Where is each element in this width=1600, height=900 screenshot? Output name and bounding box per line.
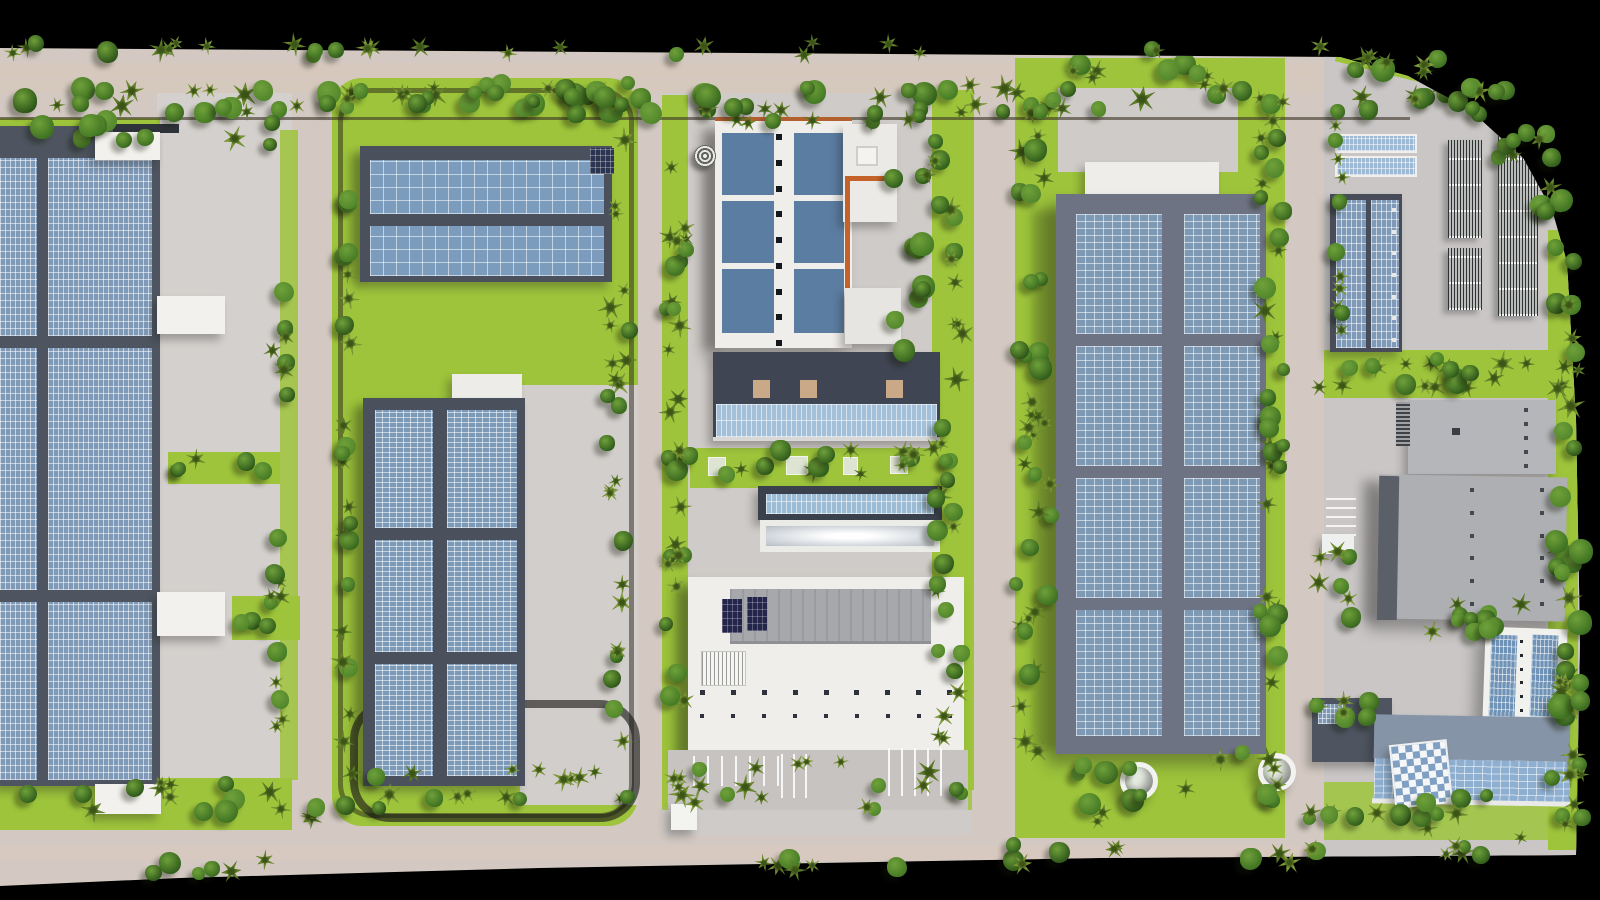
tree-icon: [1429, 50, 1447, 68]
tree-icon: [1268, 129, 1286, 147]
building-e2-vent-column-0: [1524, 408, 1528, 412]
palm-tree-icon: [1412, 53, 1436, 77]
tree-icon: [194, 102, 215, 123]
tree-icon: [1416, 793, 1435, 812]
tree-icon: [720, 787, 735, 802]
building-d-panel-8: [1184, 610, 1260, 736]
building-c4-vent-row-1-6: [885, 690, 890, 695]
tree-icon: [614, 97, 629, 112]
water-tank-small: [694, 145, 716, 167]
tree-icon: [817, 446, 835, 464]
building-c4-vent-row-2-2: [762, 714, 766, 718]
tree-icon: [513, 792, 527, 806]
building-e1-roof-dots-3: [1392, 273, 1396, 277]
building-c1-panel-1: [722, 133, 774, 195]
tree-icon: [307, 798, 325, 816]
building-c4-vent-row-1-4: [824, 690, 829, 695]
v1-road-planter: [280, 130, 298, 780]
site-ground: [0, 0, 1600, 900]
building-e4-solar-2: [1530, 635, 1559, 718]
tree-icon: [1451, 789, 1471, 809]
building-a-panel-3: [0, 602, 37, 780]
tree-icon: [893, 339, 915, 361]
tree-icon: [1442, 361, 1459, 378]
tree-icon: [871, 778, 886, 793]
tree-icon: [620, 790, 634, 804]
tree-icon: [605, 700, 622, 717]
tree-icon: [946, 663, 963, 680]
tree-icon: [269, 529, 287, 547]
aerial-site-render: [0, 0, 1600, 900]
tree-icon: [901, 83, 916, 98]
building-e3-vent-column-2-3: [1540, 556, 1544, 560]
tree-icon: [1235, 745, 1250, 760]
building-e4-center-dots-1: [1520, 654, 1523, 657]
tree-icon: [944, 503, 963, 522]
bike-parking-row-2: [1448, 248, 1482, 310]
palm-tree-icon: [1363, 47, 1379, 63]
tree-icon: [95, 82, 113, 100]
building-a-panel-1: [0, 158, 37, 336]
tree-icon: [1021, 539, 1039, 557]
building-c4-vent-row-2-7: [917, 714, 921, 718]
tree-icon: [1122, 761, 1137, 776]
building-c4-vent-row-1-0: [700, 690, 705, 695]
tree-icon: [1144, 41, 1160, 57]
building-c4-vent-row-2-1: [731, 714, 735, 718]
tree-icon: [215, 99, 232, 116]
building-d-panel-2: [1076, 346, 1162, 466]
building-e3-vent-column-1-1: [1470, 511, 1474, 515]
tree-icon: [603, 670, 621, 688]
palm-tree-icon: [1464, 77, 1494, 107]
building-c1-panel-3: [722, 269, 774, 333]
building-e2-vent-column-3: [1524, 450, 1528, 454]
tree-icon: [267, 642, 287, 662]
tree-icon: [1009, 577, 1023, 591]
tree-icon: [1462, 78, 1482, 98]
tree-icon: [30, 115, 54, 139]
tree-icon: [1488, 84, 1505, 101]
tree-icon: [408, 94, 427, 113]
tree-icon: [1320, 806, 1338, 824]
tree-icon: [1044, 508, 1059, 523]
building-d-panel-6: [1184, 346, 1260, 466]
palm-tree-icon: [1413, 61, 1435, 83]
building-e2-roof: [1408, 400, 1556, 474]
tree-icon: [621, 322, 638, 339]
tree-icon: [1346, 807, 1365, 826]
building-d-top-annex: [1085, 162, 1219, 198]
tree-icon: [233, 614, 249, 630]
carport-canopy-1: [1335, 134, 1417, 153]
tree-icon: [718, 466, 735, 483]
building-c1-roof-vents-1: [776, 160, 782, 166]
tree-icon: [929, 576, 946, 593]
tree-icon: [594, 86, 616, 108]
tree-icon: [336, 796, 354, 814]
tree-icon: [1341, 607, 1361, 627]
tree-icon: [274, 282, 294, 302]
tree-icon: [1437, 85, 1454, 102]
tree-icon: [116, 132, 132, 148]
tree-icon: [867, 105, 883, 121]
tree-icon: [567, 105, 586, 124]
building-c1-panel-4: [794, 133, 844, 195]
building-c4-pv-patch-1: [722, 599, 742, 633]
palm-tree-icon: [1307, 34, 1332, 59]
building-d-panel-5: [1184, 214, 1260, 334]
tree-icon: [910, 232, 934, 256]
tree-icon: [1023, 274, 1039, 290]
tree-icon: [468, 86, 482, 100]
building-b2-panel-4: [447, 410, 517, 528]
tree-icon: [1019, 664, 1040, 685]
tree-icon: [668, 664, 687, 683]
tree-icon: [1479, 620, 1498, 639]
tree-icon: [259, 618, 275, 634]
building-c4-vent-row-1-1: [731, 690, 736, 695]
tree-icon: [1257, 784, 1277, 804]
tree-icon: [1060, 81, 1076, 97]
tree-icon: [1028, 467, 1043, 482]
tree-icon: [1268, 646, 1288, 666]
tree-icon: [1550, 189, 1574, 213]
building-e2-vent-column-1: [1524, 422, 1528, 426]
building-c1-roof-vents-5: [776, 263, 782, 269]
tree-icon: [934, 419, 951, 436]
tree-icon: [1273, 202, 1291, 220]
tree-icon: [938, 80, 959, 101]
building-c2-vent-1: [753, 380, 770, 398]
building-c4-vent-row-2-5: [855, 714, 859, 718]
building-d-panel-7: [1184, 478, 1260, 598]
building-d-panel-3: [1076, 478, 1162, 598]
building-c1-roof-vents-7: [776, 314, 782, 320]
building-c3-solar-strip: [766, 494, 934, 514]
bike-parking-row-1: [1448, 140, 1482, 238]
palm-tree-icon: [876, 32, 901, 57]
building-d-panel-4: [1076, 610, 1162, 736]
building-e1-roof-dots-4: [1392, 295, 1396, 299]
tree-icon: [1495, 81, 1514, 100]
building-e3-vent-column-2-2: [1540, 534, 1544, 538]
building-e4-center-dots-3: [1520, 681, 1523, 684]
tree-icon: [599, 435, 615, 451]
building-e3-vent-column-2-5: [1540, 602, 1544, 606]
building-c4-vent-row-1-5: [854, 690, 859, 695]
building-a-panel-6: [48, 602, 152, 780]
building-c1-roof-vents-3: [776, 211, 782, 217]
building-c4-pv-patch-2: [747, 597, 767, 631]
tree-icon: [765, 113, 781, 129]
tree-icon: [72, 95, 89, 112]
tree-icon: [265, 564, 285, 584]
building-e3-vent-column-1-0: [1470, 488, 1474, 492]
building-b2-panel-1: [375, 410, 433, 528]
building-e3-left-strip: [1377, 476, 1400, 620]
building-c1-annex-skylight: [856, 146, 878, 166]
tree-icon: [343, 516, 358, 531]
tree-icon: [1390, 804, 1412, 826]
tree-icon: [487, 85, 503, 101]
building-c1-orange-trim-h: [845, 176, 889, 181]
building-e4-center-dots-2: [1520, 668, 1523, 671]
building-e3-vent-column-1-5: [1470, 602, 1474, 606]
tree-icon: [770, 440, 791, 461]
building-c1-panel-5: [794, 201, 844, 263]
tree-icon: [1461, 79, 1478, 96]
tree-icon: [667, 302, 681, 316]
building-c4-vent-row-2-4: [824, 714, 828, 718]
tree-icon: [1330, 104, 1345, 119]
building-b1-band-2: [370, 226, 604, 276]
tree-icon: [1277, 439, 1290, 452]
tree-icon: [724, 98, 743, 117]
building-e2-vent-column-4: [1524, 464, 1528, 468]
tree-icon: [934, 554, 953, 573]
tree-icon: [254, 462, 272, 480]
building-b2-panel-5: [447, 540, 517, 652]
building-e4-center-dots-5: [1520, 709, 1523, 712]
tree-icon: [1552, 198, 1566, 212]
building-c1-panel-2: [722, 201, 774, 263]
tree-icon: [938, 602, 953, 617]
tree-icon: [1261, 335, 1279, 353]
tree-icon: [1359, 100, 1378, 119]
tree-icon: [1309, 698, 1323, 712]
tree-icon: [696, 84, 720, 108]
tree-icon: [1037, 585, 1057, 605]
tree-icon: [74, 785, 92, 803]
tree-icon: [996, 104, 1010, 118]
tree-icon: [660, 686, 680, 706]
building-e3-roof: [1377, 474, 1567, 621]
tree-icon: [425, 789, 442, 806]
building-b2-panel-2: [375, 540, 433, 652]
building-c1-roof-vents-8: [776, 340, 782, 346]
tree-icon: [953, 645, 970, 662]
tree-icon: [1265, 158, 1284, 177]
bike-parking-row-3: [1498, 114, 1538, 316]
building-e2-vent-column-2: [1524, 436, 1528, 440]
tree-icon: [915, 281, 931, 297]
tree-icon: [1277, 363, 1290, 376]
building-e1-roof-dots-6: [1392, 338, 1396, 342]
tree-icon: [1259, 418, 1279, 438]
carport-canopy-2: [1335, 156, 1417, 177]
tree-icon: [1518, 124, 1536, 142]
building-c1-roof-vents-2: [776, 186, 782, 192]
building-c4-louvre-grille: [701, 651, 746, 686]
building-c1-panel-6: [794, 269, 844, 333]
tree-icon: [1094, 761, 1118, 785]
building-a-canopy-right-1: [157, 296, 225, 334]
palm-tree-icon: [48, 96, 68, 116]
walkway-canopy-2: [786, 456, 808, 475]
building-e3-vent-column-1-4: [1470, 579, 1474, 583]
building-a-panel-4: [48, 158, 152, 336]
building-c1-orange-trim-v: [845, 176, 850, 304]
tree-icon: [1254, 277, 1276, 299]
tree-icon: [600, 389, 614, 403]
parking-stripes-e: [1326, 494, 1356, 536]
building-c4-vent-row-1-2: [762, 690, 767, 695]
tree-icon: [1442, 77, 1463, 98]
palm-tree-icon: [1526, 126, 1552, 152]
tree-icon: [279, 387, 295, 403]
building-c2-vent-2: [800, 380, 817, 398]
building-c1-roof-vents-4: [776, 237, 782, 243]
building-c1-roof-vents-0: [776, 134, 782, 140]
tree-icon: [1270, 228, 1290, 248]
walkway-canopy-3: [843, 457, 858, 475]
tree-icon: [194, 802, 212, 820]
palm-tree-icon: [802, 32, 823, 53]
building-b1-pv-corner: [590, 148, 614, 174]
building-e4-center-dots-4: [1520, 695, 1523, 698]
tree-icon: [165, 103, 184, 122]
tree-icon: [172, 462, 186, 476]
building-c4-vent-row-1-7: [916, 690, 921, 695]
building-b1-band-1: [370, 160, 604, 214]
tree-icon: [1259, 615, 1281, 637]
tree-icon: [1395, 374, 1416, 395]
building-e1-roof-dots-0: [1392, 208, 1396, 212]
building-a-panel-2: [0, 348, 37, 590]
building-e3-vent-column-2-1: [1540, 511, 1544, 515]
building-e1-roof-dots-1: [1392, 230, 1396, 234]
tree-icon: [237, 452, 255, 470]
palm-tree-icon: [1360, 49, 1375, 64]
building-e4-solar-1: [1489, 635, 1518, 718]
building-e3-vent-column-1-3: [1470, 556, 1474, 560]
tree-icon: [319, 95, 336, 112]
tree-icon: [264, 115, 280, 131]
building-c4-vent-row-2-6: [886, 714, 890, 718]
tree-icon: [884, 169, 903, 188]
tree-icon: [1029, 357, 1051, 379]
tree-icon: [353, 83, 368, 98]
tree-icon: [1542, 148, 1561, 167]
tree-icon: [1033, 104, 1048, 119]
building-e3-vent-column-2-0: [1540, 488, 1544, 492]
tree-icon: [1091, 101, 1107, 117]
tree-icon: [1010, 341, 1029, 360]
tree-icon: [1537, 125, 1555, 143]
tree-icon: [335, 446, 350, 461]
building-e3-vent-column-1-2: [1470, 534, 1474, 538]
building-c2-eave: [713, 437, 940, 441]
tree-icon: [665, 256, 684, 275]
tree-icon: [1017, 623, 1033, 639]
building-a-panel-5: [48, 348, 152, 590]
tree-icon: [940, 472, 955, 487]
tree-icon: [271, 690, 289, 708]
building-c2-vent-3: [886, 380, 903, 398]
tree-icon: [253, 80, 274, 101]
building-c4-vent-row-2-0: [700, 714, 704, 718]
building-c4-slope-eave: [730, 641, 931, 644]
tree-icon: [339, 531, 358, 550]
tree-icon: [1273, 460, 1286, 473]
building-e2-vent: [1452, 428, 1460, 435]
tree-icon: [1260, 389, 1276, 405]
building-c3-shiny-strip: [766, 526, 934, 546]
building-e2-stair-section: [1396, 402, 1410, 446]
building-c1-roof-vents-6: [776, 289, 782, 295]
tree-icon: [372, 801, 386, 815]
building-e4-center-dots-0: [1520, 640, 1523, 643]
building-e1-roof-dots-2: [1392, 251, 1396, 255]
tree-icon: [1358, 708, 1376, 726]
tree-icon: [931, 644, 945, 658]
tree-icon: [640, 102, 662, 124]
tree-icon: [800, 81, 815, 96]
tree-icon: [527, 95, 540, 108]
tree-icon: [1021, 184, 1040, 203]
tree-icon: [927, 520, 948, 541]
tree-icon: [886, 311, 904, 329]
tree-icon: [1333, 578, 1349, 594]
building-d-panel-1: [1076, 214, 1162, 334]
building-a-canopy-right-2: [157, 592, 225, 636]
building-e1-roof-dots-5: [1392, 316, 1396, 320]
tree-icon: [1365, 358, 1380, 373]
tree-icon: [13, 88, 37, 112]
tree-icon: [1232, 81, 1252, 101]
tree-icon: [1024, 139, 1047, 162]
tree-icon: [928, 134, 943, 149]
building-b2-panel-3: [375, 664, 433, 776]
building-c4-vent-row-1-3: [793, 690, 798, 695]
tree-icon: [756, 457, 774, 475]
tree-icon: [939, 454, 952, 467]
tree-icon: [1334, 305, 1350, 321]
building-b2-panel-6: [447, 664, 517, 776]
tree-icon: [339, 190, 358, 209]
tree-icon: [1078, 793, 1100, 815]
building-e3-vent-column-2-4: [1540, 579, 1544, 583]
tree-icon: [1462, 365, 1479, 382]
building-c2-solar-strip: [716, 404, 937, 437]
building-c4-vent-row-2-3: [793, 714, 797, 718]
